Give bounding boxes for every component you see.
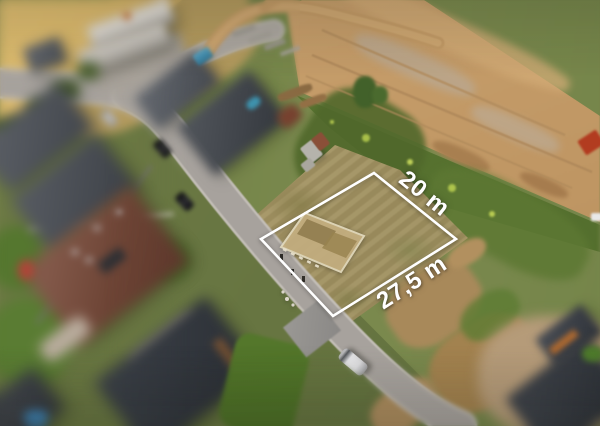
- plot-overlay: [0, 0, 600, 426]
- rubble-stone-1: [285, 297, 289, 301]
- rubble-stone-2: [291, 303, 294, 306]
- rubble-stone-3: [281, 290, 284, 293]
- aerial-photo: 20 m 27,5 m: [0, 0, 600, 426]
